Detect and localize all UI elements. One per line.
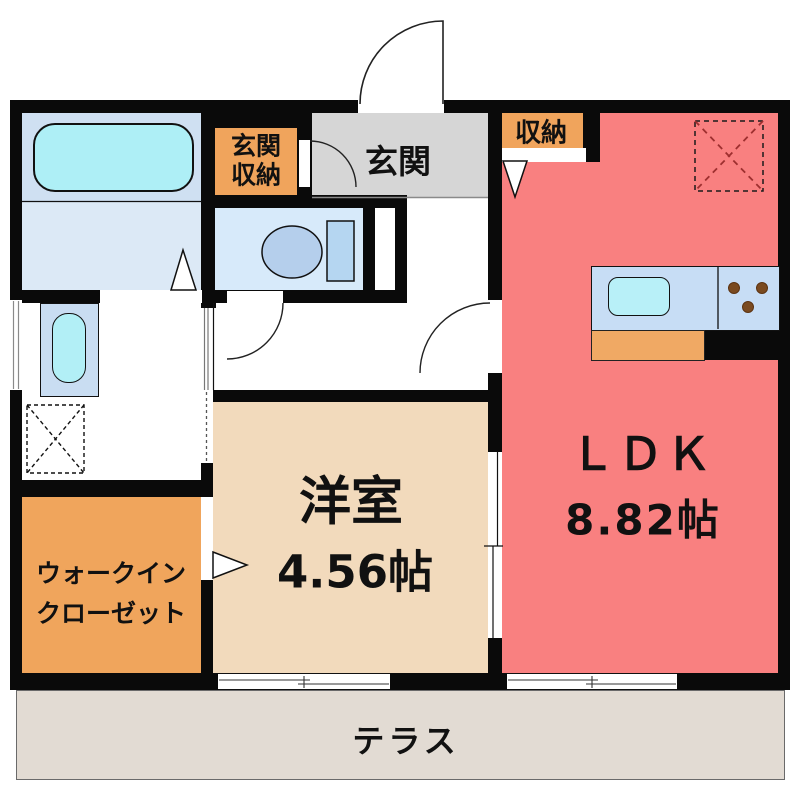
- stove-burner-icon: [756, 282, 768, 294]
- toilet-door: [227, 291, 283, 303]
- wall-left-lower: [10, 390, 22, 690]
- ldk-label: ＬＤＫ: [570, 418, 714, 483]
- entrance-storage-label-line1: 玄関: [231, 132, 281, 161]
- ldk-door: [488, 300, 502, 373]
- kitchen-sink-icon: [608, 277, 670, 316]
- window-ldk: [507, 673, 677, 690]
- entrance-door-opening: [358, 100, 444, 113]
- toilet-door-arc: [227, 303, 283, 359]
- wall-bottom-left: [10, 673, 218, 690]
- terrace-label: テラス: [352, 716, 459, 762]
- western-room-label: 洋室: [299, 460, 403, 535]
- entrance-door-arc: [360, 21, 443, 104]
- ldk-area: [502, 113, 778, 673]
- wic-opening: [201, 497, 213, 580]
- wall-corridor-bottom: [213, 390, 502, 402]
- wall-bottom-middle: [390, 673, 507, 690]
- entrance-storage-label: 玄関 収納: [231, 132, 281, 190]
- toilet-room-area: [215, 208, 363, 290]
- western-room-area-label: 4.56帖: [277, 536, 433, 601]
- closet-opening-strip: [502, 148, 586, 162]
- wall-kitchen-stub: [703, 330, 778, 360]
- entrance-storage-label-line2: 収納: [231, 161, 281, 190]
- sliding-door-pocket: [201, 390, 213, 463]
- window-western-room: [218, 673, 390, 690]
- stove-burner-icon: [742, 301, 754, 313]
- window-left-wall: [10, 300, 22, 390]
- ldk-door-arc: [420, 303, 490, 373]
- ldk-area-label: 8.82帖: [565, 487, 721, 548]
- entrance-label: 玄関: [365, 135, 431, 183]
- entrance-storage-door: [299, 140, 310, 187]
- closet-label: 収納: [515, 113, 567, 150]
- sliding-door-washroom: [201, 308, 213, 390]
- wall-wic-right-lower: [201, 580, 213, 673]
- stove-burner-icon: [728, 282, 740, 294]
- wic-label-line2: クローゼット: [36, 594, 186, 630]
- wall-bottom-right: [677, 673, 790, 690]
- wall-left-upper: [10, 100, 22, 300]
- washing-machine-space-icon: [27, 405, 84, 473]
- bathtub-icon: [33, 123, 194, 192]
- washbasin-bowl-icon: [52, 313, 86, 383]
- bathroom-door-opening: [100, 290, 202, 303]
- sliding-door-ldk-western: [488, 452, 502, 638]
- wall-right: [778, 100, 790, 690]
- wall-wic-top: [10, 480, 212, 497]
- wic-label-line1: ウォークイン: [36, 554, 186, 590]
- floor-plan-canvas: 玄関 収納 玄関 収納 ＬＤＫ 8.82帖 洋室 4.56帖 ウォークイン クロ…: [0, 0, 800, 800]
- pipe-space-recess: [375, 208, 395, 290]
- kitchen-ledge: [591, 330, 705, 361]
- wall-bathroom-bottom: [22, 290, 100, 303]
- bathroom-washing-area: [22, 202, 202, 290]
